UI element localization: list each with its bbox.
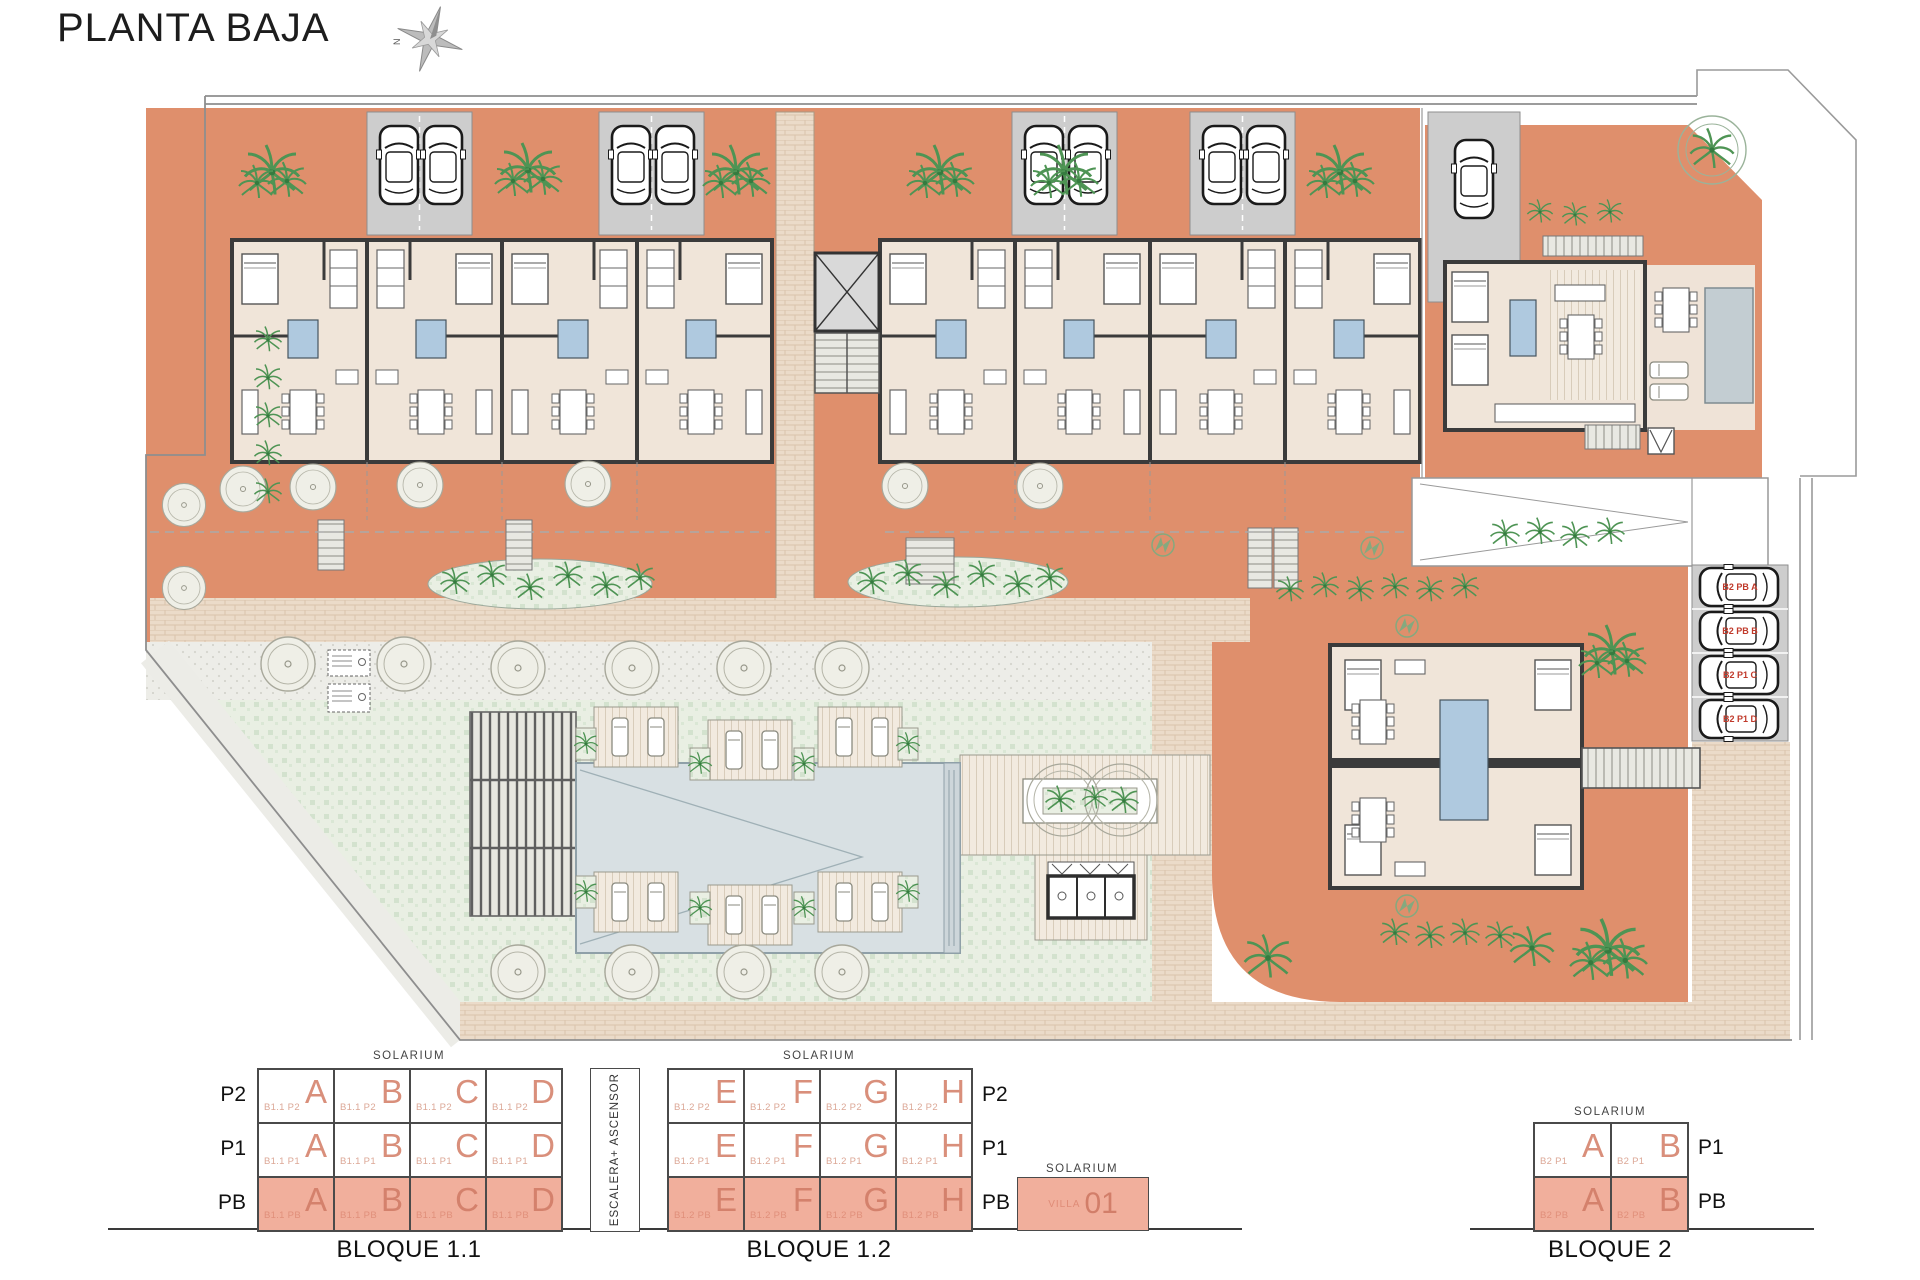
floor-label-p1: P1 [198,1137,246,1161]
bloque-1-2-caption: BLOQUE 1.2 [667,1236,971,1264]
legend-cell-pb: B2 PBB [1611,1177,1688,1231]
driveway-ramp [1412,478,1768,566]
floor-label-pb: PB [1698,1190,1748,1214]
compass-north-icon: N [393,2,467,76]
page-title: PLANTA BAJA [57,6,330,51]
solarium-label-b2: SOLARIUM [1533,1106,1687,1118]
legend-stair-core: ESCALERA+ ASCENSOR [590,1068,640,1232]
legend-cell: B1.2 P1G [820,1123,896,1177]
car-icon [1066,126,1111,204]
solarium-label-b11: SOLARIUM [257,1050,561,1062]
legend-cell: B1.2 P2E [668,1069,744,1123]
pergola [470,712,576,916]
car-icon [421,126,466,204]
north-label: N [393,39,402,46]
floor-label-p1: P1 [1698,1136,1748,1160]
legend-cell-pb: B1.1 PBC [410,1177,486,1231]
car-icon [1200,126,1245,204]
legend-cell: B1.2 P2G [820,1069,896,1123]
floor-label-pb: PB [198,1191,246,1215]
car-icon [1452,140,1497,218]
bloque-1-1-caption: BLOQUE 1.1 [257,1236,561,1264]
car-icon [609,126,654,204]
parking-label: B2 PB B [1722,626,1758,636]
legend-cell: B1.1 P2A [258,1069,334,1123]
legend-cell: B1.2 P2F [744,1069,820,1123]
solarium-label-villa: SOLARIUM [1017,1163,1147,1175]
parking-label: B2 P1 C [1723,670,1758,680]
bloque-1-1-building [232,240,772,462]
legend-cell-pb: B1.2 PBG [820,1177,896,1231]
legend-cell: B1.2 P1F [744,1123,820,1177]
car-icon [1244,126,1289,204]
car-icon [653,126,698,204]
car-icon [377,126,422,204]
legend-cell: B1.1 P2D [486,1069,562,1123]
legend-cell: B1.1 P1D [486,1123,562,1177]
parking-label: B2 PB A [1722,582,1758,592]
pool-wc-building [1048,862,1134,918]
legend-cell: B1.1 P1B [334,1123,410,1177]
legend-bloque-1-2: B1.2 P2E B1.2 P2F B1.2 P2G B1.2 P2H B1.2… [667,1068,973,1232]
floor-label-p2: P2 [982,1083,1032,1107]
legend-cell: B1.2 P1H [896,1123,972,1177]
legend-cell-pb: B1.1 PBB [334,1177,410,1231]
villa-pool [1705,288,1753,403]
legend-cell-pb: B1.2 PBF [744,1177,820,1231]
legend-cell-pb: B1.2 PBE [668,1177,744,1231]
floor-label-p1: P1 [982,1137,1032,1161]
legend-cell-pb: B2 PBA [1534,1177,1611,1231]
legend-cell: B2 P1A [1534,1123,1611,1177]
bloque2-stairs [1582,748,1700,788]
legend-cell-pb: B1.1 PBD [486,1177,562,1231]
legend-cell: B1.1 P2C [410,1069,486,1123]
bloque-1-2-building [880,240,1420,462]
bloque-2-caption: BLOQUE 2 [1515,1236,1705,1264]
parking-label: B2 P1 D [1723,714,1758,724]
legend-villa-01: VILLA01 [1017,1177,1149,1231]
legend-cell: B2 P1B [1611,1123,1688,1177]
floor-label-p2: P2 [198,1083,246,1107]
legend-cell: B1.2 P2H [896,1069,972,1123]
legend-cell-pb: B1.2 PBH [896,1177,972,1231]
legend-cell: B1.1 P2B [334,1069,410,1123]
bloque2-parking: B2 PB A B2 PB B B2 P1 C B2 P1 D [1692,565,1788,742]
solarium-label-b12: SOLARIUM [667,1050,971,1062]
legend-cell: B1.2 P1E [668,1123,744,1177]
legend-cell-pb: B1.1 PBA [258,1177,334,1231]
legend-cell: B1.1 P1C [410,1123,486,1177]
legend-cell: B1.1 P1A [258,1123,334,1177]
legend-bloque-1-1: B1.1 P2A B1.1 P2B B1.1 P2C B1.1 P2D B1.1… [257,1068,563,1232]
legend-bloque-2: B2 P1A B2 P1B B2 PBA B2 PBB [1533,1122,1689,1232]
floor-plan-sheet: B2 PB A B2 PB B B2 P1 C B2 P1 D [0,0,1920,1280]
